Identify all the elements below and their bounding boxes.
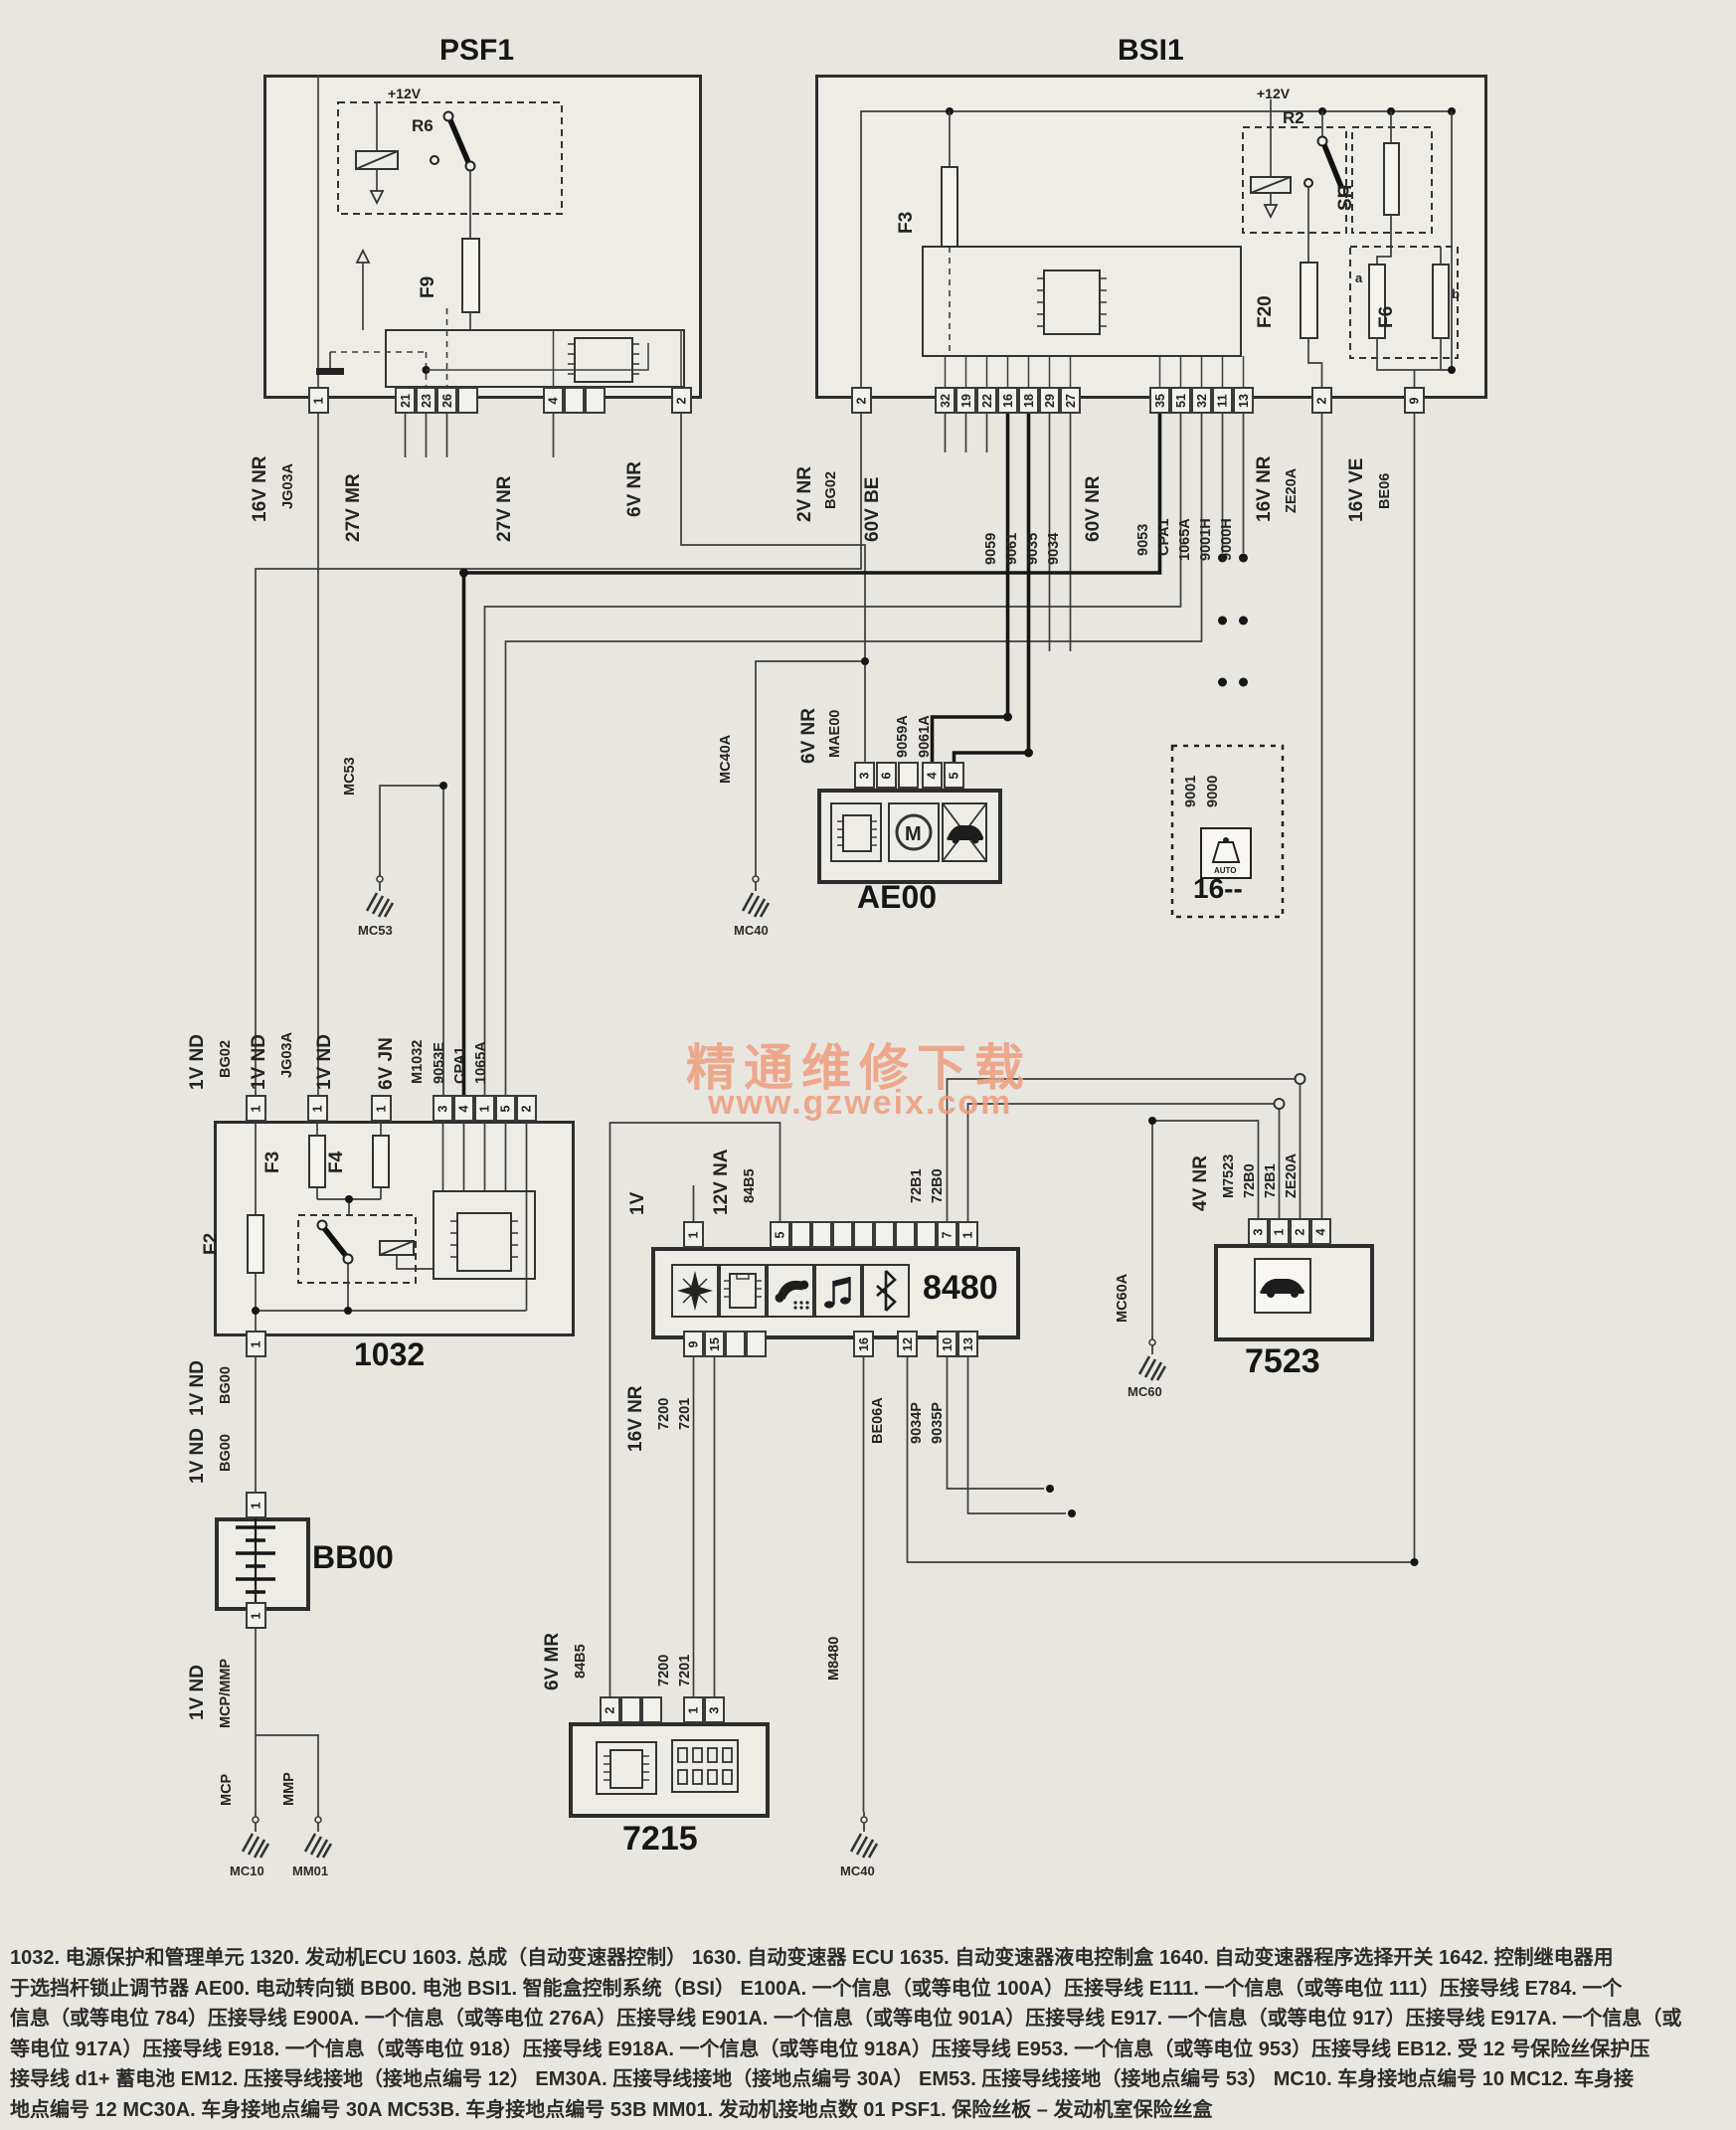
bsi1-pin-27: 27 [1060,387,1081,414]
u8480-pin-7: 7 [937,1221,957,1248]
bsi1-pin-35: 35 [1149,387,1170,414]
label-wire-9035: 9035 [1025,533,1041,565]
u8480-pin-13: 13 [957,1331,978,1357]
label-wire-ze20a: ZE20A [1284,468,1300,513]
label-wire-mc60a: MC60A [1115,1274,1130,1323]
watermark-url: www.gzweix.com [708,1084,1012,1123]
label-wire-72b0: 72B0 [930,1168,946,1203]
label-wire-mcp: MCP [219,1774,235,1806]
u7523-title: 7523 [1245,1342,1320,1381]
net-9059a-thick [933,414,1008,762]
label-wire-72b1: 72B1 [909,1168,925,1203]
u8480-pin-empty [895,1221,916,1248]
psf1-pin-21: 21 [395,387,416,414]
auto-gearbox-icon [1201,828,1251,878]
label-wire-9053: 9053 [1135,524,1151,556]
u1032-pin-3: 3 [433,1095,453,1122]
label-1032-1v-nd-a: 1V ND [188,1034,208,1090]
u1032-pin-5: 5 [495,1095,516,1122]
bsi1-pin-32: 32 [935,387,955,414]
u7215-pin-empty [620,1696,641,1723]
legend-line: 等电位 917A）压接导线 E918. 一个信息（或等电位 918）压接导线 E… [10,2035,1728,2065]
u7215-pin-1: 1 [683,1696,704,1723]
u1032-title: 1032 [354,1336,425,1373]
u8480-pin-15: 15 [704,1331,725,1357]
psf1-pin-empty [585,387,606,414]
label-wire-m1032: M1032 [410,1040,426,1084]
label-wire-72b0-b: 72B0 [1242,1163,1258,1198]
u8480-pin-5: 5 [770,1221,790,1248]
legend-line: 接导线 d1+ 蓄电池 EM12. 压接导线接地（接地点编号 12） EM30A… [10,2064,1728,2095]
ae00-pin-6: 6 [876,762,897,789]
bsi1-pin-9: 9 [1404,387,1425,414]
label-wire-mcpmmp: MCP/MMP [218,1659,234,1728]
label-wire-9053e: 9053E [432,1042,447,1084]
bb00-pin-bottom: 1 [246,1602,266,1629]
u7215-pin-empty [641,1696,662,1723]
label-wire-ze20a-b: ZE20A [1284,1154,1300,1198]
bsi1-box [815,75,1487,399]
label-ground-mc60: MC60 [1128,1384,1162,1399]
label-wire-9061: 9061 [1004,533,1020,565]
bsi1-pin-32b: 32 [1191,387,1212,414]
ae00-pin-5: 5 [944,762,964,789]
label-wire-mc53: MC53 [342,757,358,796]
ground-mc53 [367,871,393,917]
label-wire-bg00-a: BG00 [218,1366,234,1404]
label-8480-12v-na: 12V NA [712,1149,732,1215]
label-ground-mm01: MM01 [292,1864,328,1878]
label-bg00-1v-nd-b: 1V ND [188,1428,208,1484]
label-1032-bg02: BG02 [218,1040,234,1078]
label-wire-9035p: 9035P [930,1402,946,1444]
continuation-dots [1218,554,1248,687]
label-wire-9000: 9000 [1205,776,1221,807]
psf1-pin-2: 2 [671,387,692,414]
unit7215-box [569,1722,770,1818]
bsi1-stub-wires [946,414,987,452]
bsi1-pin-51: 51 [1170,387,1191,414]
psf1-pin-1: 1 [308,387,329,414]
label-wire-72b1-b: 72B1 [1263,1163,1279,1198]
label-wire-m8480: M8480 [826,1637,842,1681]
net-9035p [968,1357,1067,1513]
label-wire-be06a: BE06A [870,1397,886,1444]
label-wire-1065a-b: 1065A [473,1041,489,1084]
legend-line: 地点编号 12 MC30A. 车身接地点编号 30A MC53B. 车身接地点编… [10,2095,1728,2126]
label-1032-1v-nd-b: 1V ND [250,1034,269,1090]
u8480-pin-10: 10 [937,1331,957,1357]
label-bsi1-16v-nr: 16V NR [1255,455,1275,522]
label-wire-be06: BE06 [1377,473,1393,509]
legend-text-block: 1032. 电源保护和管理单元 1320. 发动机ECU 1603. 总成（自动… [10,1943,1728,2125]
bb00-pin-top: 1 [246,1492,266,1518]
inline-connectors [1275,1074,1305,1109]
u7523-pin-1: 1 [1269,1218,1290,1245]
bsi1-pin-22: 22 [976,387,997,414]
label-1032-jg03a: JG03A [279,1032,295,1078]
ground-mc40-mid [743,871,769,917]
u7215-pin-2: 2 [600,1696,620,1723]
u1032-pin-bottom: 1 [246,1331,266,1357]
label-8480-1v: 1V [628,1192,648,1215]
label-wire-9034: 9034 [1046,533,1062,565]
bb00-title: BB00 [312,1539,394,1576]
label-bb00-1v-nd: 1V ND [188,1665,208,1720]
bsi1-pin-29: 29 [1039,387,1060,414]
u1032-pin-4: 4 [453,1095,474,1122]
label-ground-mc53: MC53 [358,923,393,938]
label-wire-bg00-b: BG00 [218,1434,234,1472]
label-bsi1-60v-be: 60V BE [863,477,883,542]
bsi1-pin-16: 16 [997,387,1018,414]
ground-mm01 [305,1812,331,1858]
label-wire-7200-a: 7200 [656,1398,672,1430]
u8480-pin-1b: 1 [957,1221,978,1248]
psf1-pin-empty [564,387,585,414]
label-wire-mc40a: MC40A [718,735,734,784]
label-wire-cpa1: CPA1 [1156,518,1172,556]
label-wire-7201-a: 7201 [677,1398,693,1430]
label-wire-9034p: 9034P [909,1402,925,1444]
u8480-pin-empty [811,1221,832,1248]
unit7523-box [1214,1244,1374,1341]
label-bsi1-60v-nr: 60V NR [1084,475,1104,542]
psf1-pin-4: 4 [543,387,564,414]
u7523-pin-3: 3 [1248,1218,1269,1245]
legend-line: 1032. 电源保护和管理单元 1320. 发动机ECU 1603. 总成（自动… [10,1943,1728,1974]
u1032-pin-1d: 1 [474,1095,495,1122]
c16-title: 16-- [1193,873,1243,905]
bsi1-pin-11: 11 [1212,387,1233,414]
label-f20: F20 [1256,295,1276,328]
u8480-pin-empty [874,1221,895,1248]
label-psf1-16v-nr: 16V NR [251,455,270,522]
label-wire-cpa1-b: CPA1 [452,1046,468,1084]
u7215-title: 7215 [622,1820,698,1859]
ground-mc60 [1139,1334,1165,1380]
label-wire-mae00: MAE00 [827,710,843,758]
bsi1-pin-18: 18 [1018,387,1039,414]
ae00-title: AE00 [857,879,937,916]
u7523-pin-4: 4 [1310,1218,1331,1245]
label-ae00-6v-nr: 6V NR [799,708,819,764]
legend-line: 于选挡杆锁止调节器 AE00. 电动转向锁 BB00. 电池 BSI1. 智能盒… [10,1974,1728,2005]
net-9061a-thick [955,414,1029,762]
psf1-pin-26: 26 [436,387,457,414]
psf1-pin-empty [457,387,478,414]
u8480-pin-1: 1 [683,1221,704,1248]
label-f6: F6 [1377,306,1397,328]
u1032-pin-1a: 1 [246,1095,266,1122]
u1032-pin-1c: 1 [371,1095,392,1122]
label-wire-mmp: MMP [281,1772,297,1806]
u1032-pin-2: 2 [516,1095,537,1122]
label-wire-84b5: 84B5 [742,1168,758,1203]
label-wire-1065a: 1065A [1177,518,1193,561]
ae00-pin-4: 4 [922,762,943,789]
label-7523-4v-nr: 4V NR [1191,1155,1211,1211]
label-psf1-jg03a: JG03A [280,463,296,509]
bsi1-pin-19: 19 [955,387,976,414]
ground-mc10 [243,1812,268,1858]
label-wire-9059: 9059 [983,533,999,565]
u8480-pin-empty [832,1221,853,1248]
bsi1-pin-ze: 2 [1311,387,1332,414]
bsi1-pin-2: 2 [851,387,872,414]
psf1-box [263,75,702,399]
label-psf1-27v-nr: 27V NR [495,475,515,542]
u8480-pin-empty [746,1331,767,1357]
label-wire-9061a: 9061A [917,715,933,758]
wiring-diagram-page: +12V R6 [0,0,1736,2130]
label-1032-f4: F4 [327,1152,347,1173]
label-wire-84b5-b: 84B5 [573,1644,589,1679]
bb00-box [215,1517,310,1611]
legend-line: 信息（或等电位 784）压接导线 E900A. 一个信息（或等电位 276A）压… [10,2004,1728,2035]
label-psf1-27v-mr: 27V MR [344,473,364,542]
label-wire-9001: 9001 [1183,776,1199,807]
u7215-pin-3: 3 [704,1696,725,1723]
ae00-pin-empty [898,762,919,789]
label-wire-7201-b: 7201 [677,1655,693,1686]
u8480-pin-12: 12 [897,1331,918,1357]
label-wire-7200-b: 7200 [656,1655,672,1686]
label-bsi1-2v-nr: 2V NR [795,466,815,522]
label-ground-mc10: MC10 [230,1864,264,1878]
ae00-pin-3: 3 [854,762,875,789]
label-7215-6v-mr: 6V MR [543,1633,563,1690]
label-wire-9000h: 9000H [1219,518,1235,561]
label-f3: F3 [897,212,917,234]
net-9034p [948,1357,1045,1489]
label-f2: F2 [202,1233,222,1255]
u8480-pin-16: 16 [853,1331,874,1357]
psf1-stub-wires [406,414,554,457]
u8480-pin-empty [853,1221,874,1248]
label-1032-1v-nd-c: 1V ND [315,1034,335,1090]
bsi1-pin-13: 13 [1233,387,1254,414]
label-1032-f3: F3 [263,1152,283,1173]
label-bsi1-16v-ve: 16V VE [1347,458,1367,522]
label-wire-9001h: 9001H [1198,518,1214,561]
label-psf1-6v-nr: 6V NR [625,461,645,517]
psf1-title: PSF1 [439,34,514,68]
u8480-pin-9: 9 [683,1331,704,1357]
label-bsi1-bg02: BG02 [823,471,839,509]
label-ground-mc40: MC40 [734,923,769,938]
u7523-pin-2: 2 [1290,1218,1310,1245]
ground-mc40-bottom [851,1812,877,1858]
label-bg00-1v-nd-a: 1V ND [188,1360,208,1416]
bsi1-title: BSI1 [1118,34,1184,68]
u8480-pin-empty [916,1221,937,1248]
label-wire-9059a: 9059A [895,715,911,758]
ae00-box [817,789,1002,884]
label-ground-mc40-b: MC40 [840,1864,875,1878]
u1032-pin-1b: 1 [307,1095,328,1122]
label-8480-16v-nr: 16V NR [626,1385,646,1452]
u8480-pin-empty [790,1221,811,1248]
psf1-pin-23: 23 [416,387,436,414]
label-1032-6v-jn: 6V JN [377,1037,397,1090]
u8480-pin-empty [725,1331,746,1357]
u8480-title: 8480 [923,1269,998,1308]
label-sh: SH [1336,185,1356,211]
label-f9: F9 [419,276,438,298]
label-wire-m7523: M7523 [1221,1154,1237,1198]
